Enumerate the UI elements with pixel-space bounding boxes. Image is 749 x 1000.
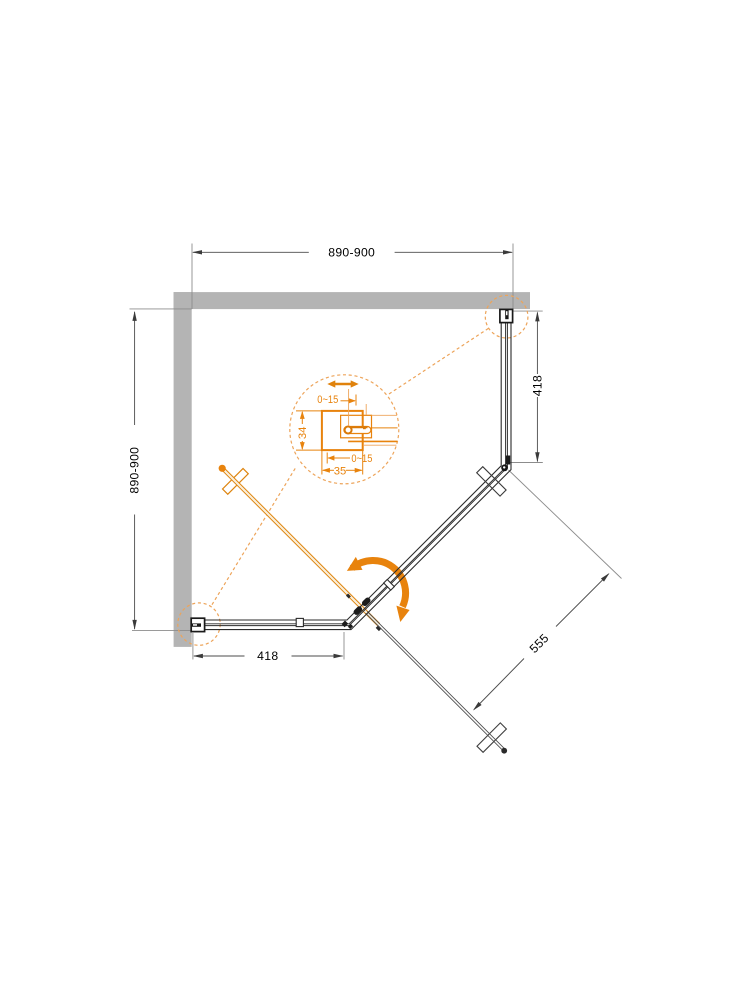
svg-text:35: 35 [334,465,347,477]
svg-text:890-900: 890-900 [128,447,142,494]
svg-text:34: 34 [297,427,309,440]
svg-text:890-900: 890-900 [328,245,375,259]
svg-text:418: 418 [530,375,544,396]
svg-text:0~15: 0~15 [317,394,338,406]
svg-text:418: 418 [257,649,278,663]
svg-text:0~15: 0~15 [351,453,372,465]
